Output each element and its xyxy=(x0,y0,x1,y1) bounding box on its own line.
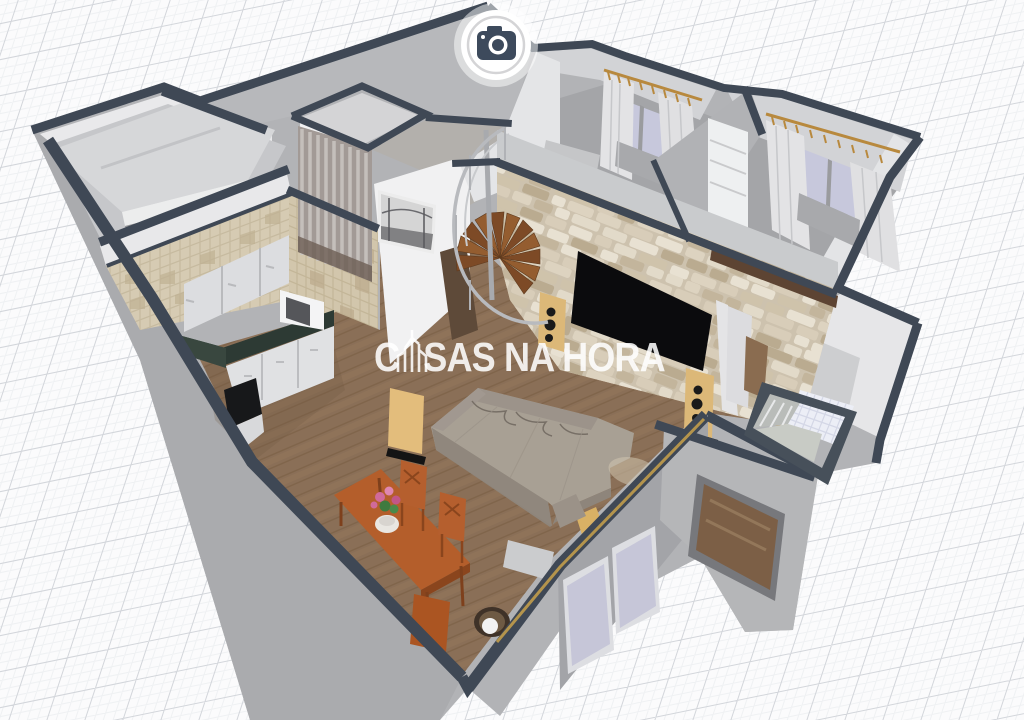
svg-text:SAS NA HORA: SAS NA HORA xyxy=(423,335,665,381)
svg-text:C: C xyxy=(374,335,399,381)
